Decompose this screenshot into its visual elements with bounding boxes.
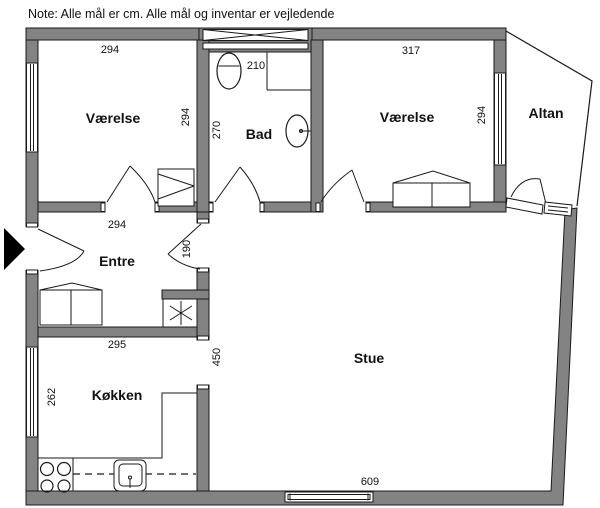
- vent-window-bath: [203, 30, 308, 50]
- wall-corridor-low: [197, 385, 209, 491]
- wardrobe-bedroom-right: [393, 171, 470, 207]
- wall-shaft-top: [162, 290, 209, 299]
- window-kitchen: [27, 347, 38, 437]
- door-bathroom: [215, 167, 260, 202]
- wall-corridor-mid: [197, 268, 209, 340]
- wardrobe-bedroom-left: [158, 169, 194, 206]
- note-text: Note: Alle mål er cm. Alle mål og invent…: [28, 7, 334, 21]
- sink-kitchen-icon: [114, 460, 146, 491]
- entrance-arrow-icon: [4, 228, 25, 270]
- wall-bedroom-bath: [197, 40, 209, 212]
- floor-plan-drawing: Note: Alle mål er cm. Alle mål og invent…: [0, 0, 600, 508]
- dim-hall-width: 294: [108, 219, 126, 231]
- dim-hall-opening: 190: [181, 240, 193, 258]
- wardrobe-hall: [40, 283, 102, 325]
- dim-living-room-left: 450: [211, 348, 223, 366]
- bath-measure-lines: [267, 52, 311, 90]
- room-label-balcony: Altan: [529, 105, 564, 121]
- window-living-room: [285, 492, 373, 502]
- door-bedroom-right: [321, 170, 364, 202]
- dim-bathroom-depth: 270: [211, 121, 223, 139]
- door-bedroom-left: [107, 166, 155, 202]
- window-bedroom-left: [27, 63, 38, 152]
- room-label-hall: Entre: [99, 253, 135, 269]
- dim-living-room-width: 609: [361, 476, 379, 488]
- entrance-opening: [26, 227, 39, 270]
- wall-mid-a: [38, 202, 105, 212]
- dim-bedroom-right-depth: 294: [476, 106, 488, 124]
- balcony-sill: [544, 202, 572, 216]
- room-label-living-room: Stue: [354, 350, 385, 366]
- wall-bath-bedroom2: [311, 40, 323, 212]
- stove-icon: [41, 463, 71, 493]
- room-label-bedroom-left: Værelse: [86, 110, 141, 126]
- door-entrance: [38, 229, 84, 271]
- room-label-bedroom-right: Værelse: [380, 109, 435, 125]
- dim-kitchen-depth: 262: [46, 388, 58, 406]
- door-balcony: [506, 179, 572, 216]
- dim-bedroom-left-depth: 294: [180, 108, 192, 126]
- dim-bedroom-left-width: 294: [101, 44, 119, 56]
- sink-bath-icon: [286, 115, 311, 147]
- shaft: [163, 299, 197, 327]
- room-labels: Værelse Bad Værelse Altan Entre Køkken S…: [86, 105, 564, 403]
- room-label-bathroom: Bad: [246, 126, 272, 142]
- dim-kitchen-width: 295: [108, 339, 126, 351]
- dim-bathroom-width: 210: [247, 60, 265, 72]
- dim-bedroom-right-width: 317: [402, 45, 420, 57]
- wall-kitchen-top: [38, 327, 197, 337]
- floor-plan: Note: Alle mål er cm. Alle mål og invent…: [0, 0, 600, 508]
- window-bedroom-right: [495, 73, 506, 165]
- toilet-icon: [217, 53, 241, 89]
- room-label-kitchen: Køkken: [92, 387, 143, 403]
